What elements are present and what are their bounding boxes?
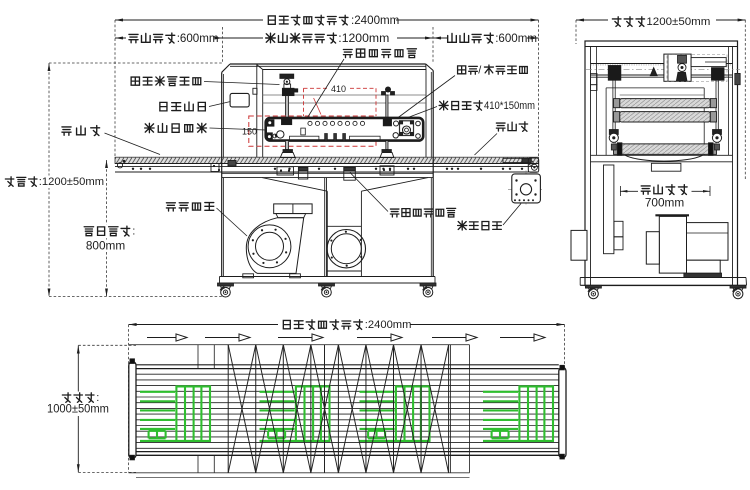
svg-text:410*150mm: 410*150mm [484, 100, 535, 112]
svg-text::: : [132, 226, 135, 238]
svg-text:/: / [478, 64, 482, 76]
svg-text:410: 410 [331, 84, 346, 94]
svg-text:150: 150 [242, 127, 257, 137]
svg-text::2400mm: :2400mm [351, 14, 399, 27]
svg-text::: : [96, 392, 99, 404]
svg-text:700mm: 700mm [645, 196, 685, 210]
svg-text::1200±50mm: :1200±50mm [39, 176, 104, 188]
svg-text::1200mm: :1200mm [338, 32, 389, 45]
svg-text:1000±50mm: 1000±50mm [47, 404, 109, 416]
svg-text::600mm: :600mm [177, 32, 219, 45]
svg-text:800mm: 800mm [86, 239, 126, 253]
svg-text:1200±50mm: 1200±50mm [646, 16, 710, 28]
svg-text::2400mm: :2400mm [365, 319, 412, 331]
